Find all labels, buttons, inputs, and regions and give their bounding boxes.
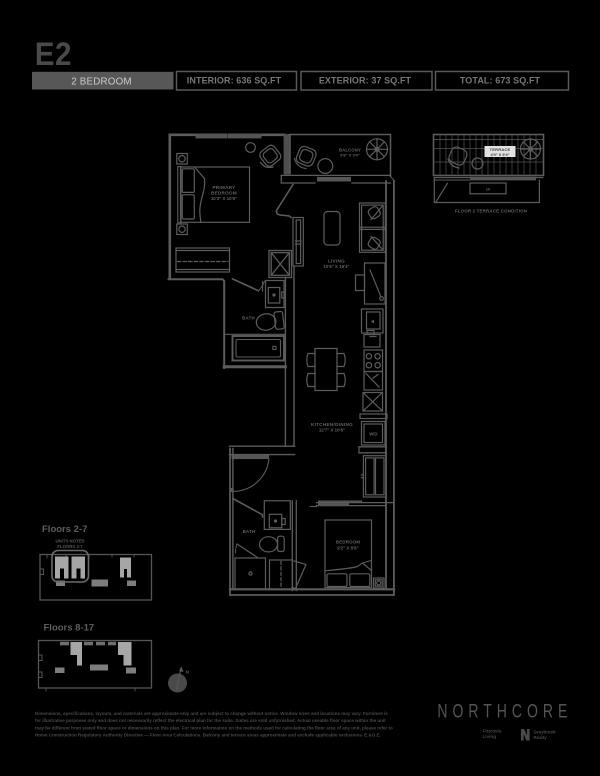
svg-text:Floors 8-17: Floors 8-17 — [44, 623, 95, 634]
svg-text:Realty: Realty — [534, 735, 548, 740]
svg-text:10'3" X 10'6": 10'3" X 10'6" — [211, 196, 237, 201]
svg-text:E2: E2 — [35, 36, 72, 73]
svg-text:10: 10 — [486, 187, 491, 192]
svg-text:12'7" X 10'6": 12'7" X 10'6" — [319, 428, 345, 433]
svg-text:10'6" X 19'4": 10'6" X 19'4" — [323, 264, 349, 269]
svg-text:FLOOR 2 TERRACE CONDITION: FLOOR 2 TERRACE CONDITION — [455, 209, 527, 214]
svg-text:for illustrative purposes only: for illustrative purposes only and does … — [35, 718, 386, 723]
svg-text:FLOORS 2-7: FLOORS 2-7 — [57, 544, 83, 549]
svg-text:Living: Living — [483, 734, 497, 739]
svg-text:UNITS NOTED: UNITS NOTED — [55, 539, 84, 544]
svg-text:Floors 2-7: Floors 2-7 — [42, 524, 87, 535]
svg-text:9'2" X 8'8": 9'2" X 8'8" — [337, 546, 358, 551]
svg-text:W/D: W/D — [369, 432, 377, 437]
svg-text:NORTHCORE: NORTHCORE — [437, 700, 572, 722]
svg-text:BEDROOM: BEDROOM — [211, 191, 237, 196]
svg-text:TOTAL: 673 SQ.FT: TOTAL: 673 SQ.FT — [460, 76, 541, 86]
svg-text:may be different from stated f: may be different from stated floor space… — [35, 725, 393, 730]
svg-text:INTERIOR: 636 SQ.FT: INTERIOR: 636 SQ.FT — [187, 76, 282, 86]
svg-text:KITCHEN/DINING: KITCHEN/DINING — [311, 422, 353, 427]
svg-text:PRIMARY: PRIMARY — [212, 185, 235, 190]
svg-text:BATH: BATH — [242, 316, 255, 321]
svg-text:BEDROOM: BEDROOM — [336, 540, 360, 545]
svg-text:9'8" X 3'4": 9'8" X 3'4" — [340, 153, 360, 158]
svg-text:Dimensions, specifications, la: Dimensions, specifications, layouts, and… — [35, 711, 388, 716]
svg-text:N: N — [186, 670, 190, 676]
svg-text:2 BEDROOM: 2 BEDROOM — [71, 76, 132, 87]
svg-text:Fitzrovia: Fitzrovia — [483, 729, 502, 734]
svg-text:BATH: BATH — [243, 529, 256, 534]
svg-text:Greybrook: Greybrook — [534, 730, 557, 735]
svg-text:Home Construction Regulatory A: Home Construction Regulatory Authority D… — [35, 733, 381, 738]
svg-text:4'0" X 9'4": 4'0" X 9'4" — [491, 152, 510, 157]
svg-text:EXTERIOR: 37 SQ.FT: EXTERIOR: 37 SQ.FT — [319, 76, 412, 86]
svg-text:LIVING: LIVING — [328, 259, 345, 264]
